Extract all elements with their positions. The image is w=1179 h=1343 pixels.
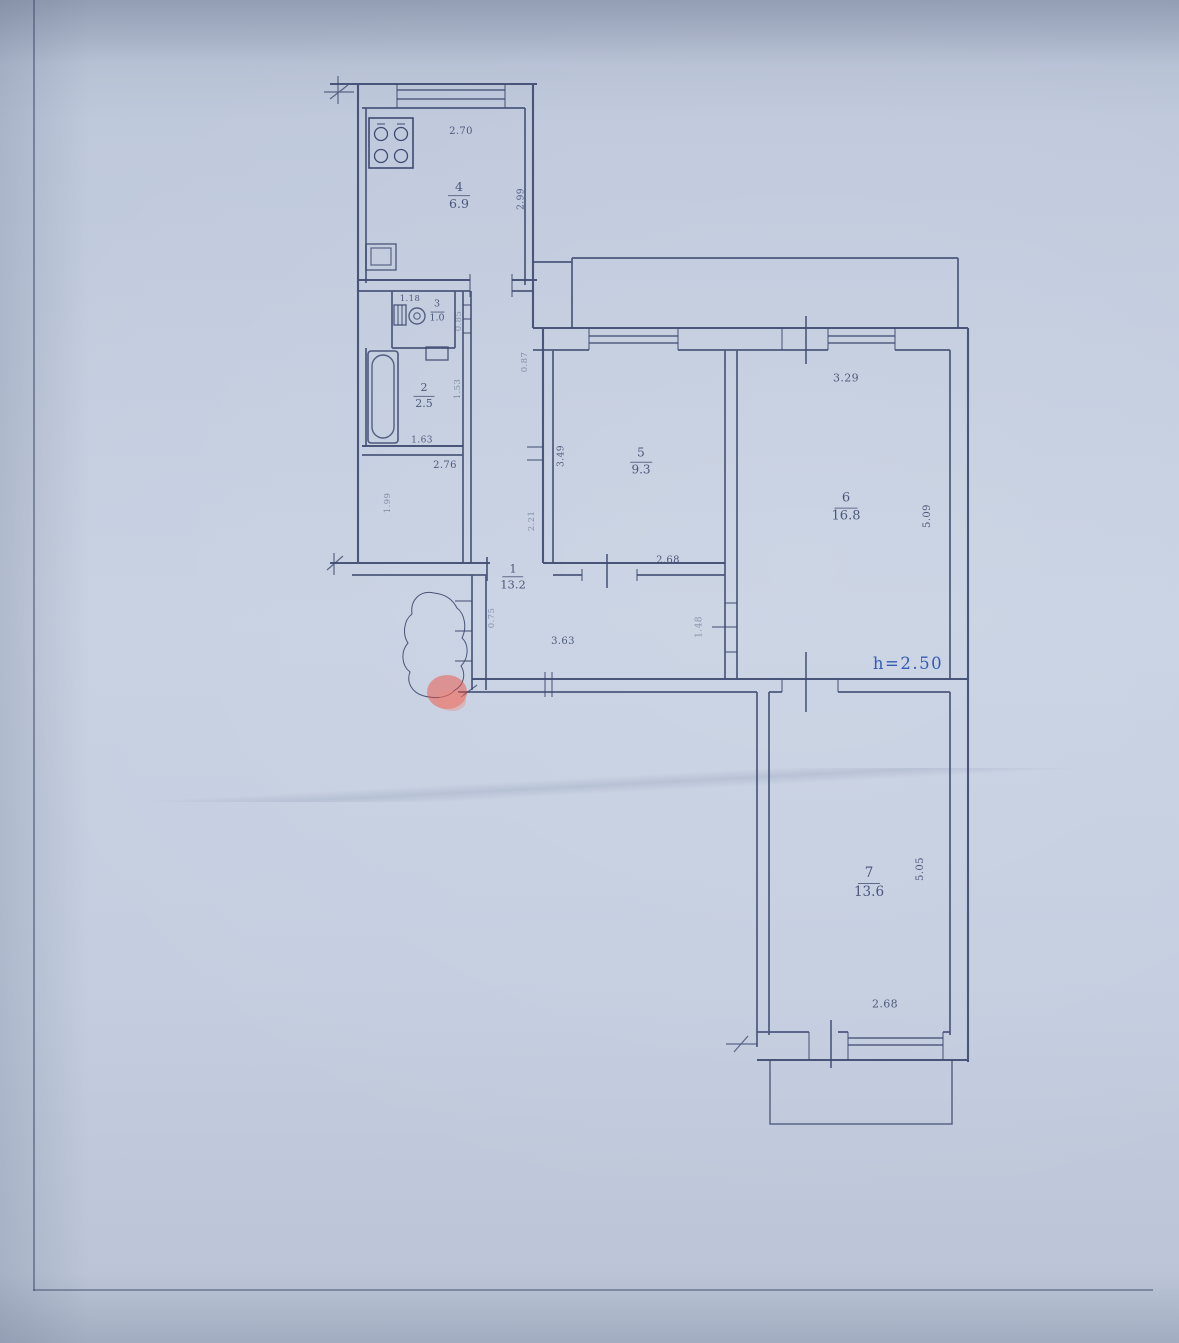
bath-sink-icon [426,347,448,360]
dim-hall-bottom: 2.76 [433,461,457,471]
floor-plan: 4 6.9 3 1.0 2 2.5 1 13.2 5 9.3 6 16.8 7 … [0,0,1179,1343]
dim-hall-left: 1.99 [384,493,393,514]
dim-corridor-bottom: 3.63 [551,637,575,647]
room-area: 13.6 [854,884,884,901]
room-area: 6.9 [449,197,469,212]
dim-bedroom-bottom: 2.68 [872,999,898,1010]
dim-bath-right: 1.53 [454,379,463,400]
dimension-ticks [324,76,943,1060]
floor-plan-lines [0,0,1179,1343]
room-number: 3 [430,300,444,313]
room-number: 5 [630,447,652,463]
room-number: 7 [858,866,881,884]
dim-entry: 0.75 [488,608,497,629]
dim-room5-left: 3.49 [558,445,567,467]
dim-living-top: 3.29 [833,373,859,384]
room-label-wc: 3 1.0 [429,300,444,325]
floor-plan-photo: 4 6.9 3 1.0 2 2.5 1 13.2 5 9.3 6 16.8 7 … [0,0,1179,1343]
dim-room5-bottom: 2.68 [656,556,680,566]
room-number: 1 [502,562,523,577]
dim-wc-right: 0.85 [455,311,464,332]
dim-kitchen-right: 2.99 [518,188,527,210]
balcony-outline [770,1060,952,1124]
kitchen-sink-icon [366,244,396,270]
room-label-bath: 2 2.5 [414,382,435,410]
windows [397,90,943,1045]
loggia-outline [533,258,958,328]
dim-vestibule: 0.87 [521,352,530,373]
dim-wc-top: 1.18 [400,295,421,304]
room-area: 9.3 [631,463,650,478]
room-area: 16.8 [832,509,861,525]
dim-living-right: 5.09 [923,504,933,528]
room-label-room5: 5 9.3 [630,447,652,478]
dim-door: 1.48 [696,616,705,638]
room-label-bedroom: 7 13.6 [854,866,884,900]
room-label-corridor: 1 13.2 [500,562,526,591]
dim-kitchen-top: 2.70 [449,127,473,137]
outer-walls [330,84,968,1062]
dim-bath-bottom: 1.63 [411,437,433,446]
room-number: 2 [414,382,435,397]
room-area: 13.2 [500,578,526,592]
interior-walls [352,108,950,1047]
ceiling-height-note: h=2.50 [873,656,943,673]
bathtub-icon [368,351,398,443]
room-area: 2.5 [415,397,433,411]
room-number: 6 [835,492,857,509]
room-label-living: 6 16.8 [832,492,861,525]
toilet-icon [394,305,425,325]
room-area: 1.0 [429,313,444,325]
red-marker-blob [403,592,467,711]
room-number: 4 [448,180,470,196]
stove-icon [369,118,413,168]
dim-corridor-mid: 2.21 [528,511,537,532]
room-label-kitchen: 4 6.9 [448,180,470,212]
dim-bedroom-right: 5.05 [916,857,926,881]
